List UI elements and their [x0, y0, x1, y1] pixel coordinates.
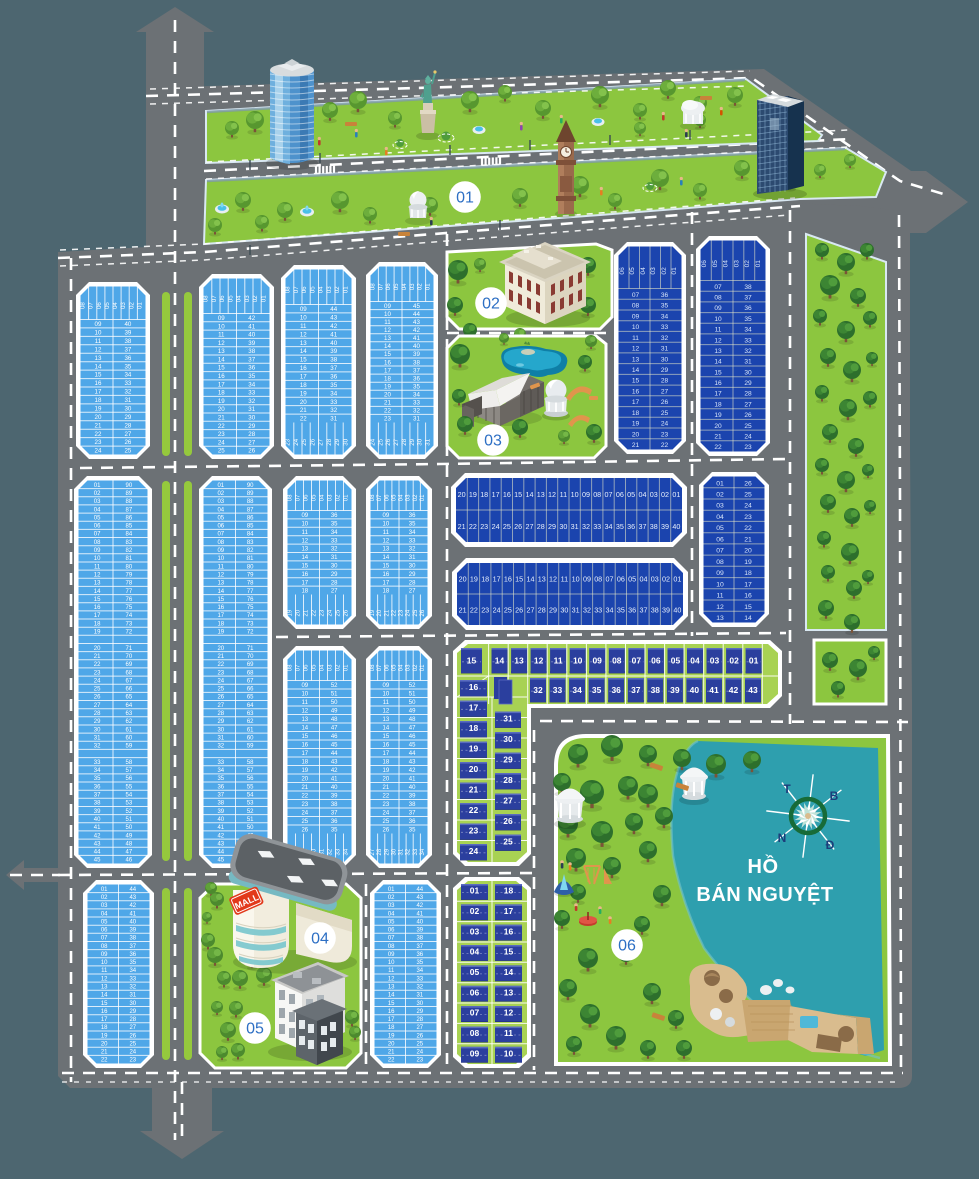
- svg-text:44: 44: [330, 306, 337, 313]
- svg-text:60: 60: [126, 736, 133, 742]
- svg-text:40: 40: [413, 343, 420, 350]
- svg-text:13: 13: [537, 490, 545, 499]
- svg-text:11: 11: [716, 593, 723, 600]
- svg-text:18: 18: [481, 575, 489, 584]
- svg-text:09: 09: [470, 1048, 480, 1058]
- svg-text:24: 24: [416, 1050, 423, 1056]
- svg-text:74: 74: [247, 613, 254, 619]
- svg-text:02: 02: [729, 656, 739, 666]
- svg-text:42: 42: [409, 768, 416, 774]
- svg-text:27: 27: [744, 401, 752, 408]
- svg-text:03: 03: [217, 499, 224, 505]
- svg-text:02: 02: [334, 286, 341, 293]
- svg-text:13: 13: [716, 615, 724, 622]
- svg-text:30: 30: [129, 1001, 136, 1007]
- svg-text:18: 18: [300, 382, 307, 389]
- svg-text:02: 02: [94, 491, 101, 497]
- svg-text:18: 18: [101, 1025, 108, 1031]
- svg-text:04: 04: [401, 283, 408, 290]
- svg-text:24: 24: [217, 678, 224, 684]
- svg-text:36: 36: [124, 355, 131, 362]
- svg-text:10: 10: [504, 1048, 514, 1058]
- svg-text:29: 29: [248, 423, 255, 430]
- svg-text:19: 19: [388, 1033, 395, 1039]
- svg-text:66: 66: [247, 687, 254, 693]
- svg-text:25: 25: [217, 687, 224, 693]
- svg-text:33: 33: [661, 324, 669, 331]
- svg-text:07: 07: [88, 302, 95, 309]
- svg-text:16: 16: [218, 373, 225, 380]
- svg-text:04: 04: [723, 260, 730, 268]
- svg-text:21: 21: [217, 654, 224, 660]
- svg-text:23: 23: [383, 802, 390, 808]
- svg-text:26: 26: [515, 606, 523, 615]
- svg-text:22: 22: [95, 431, 102, 438]
- svg-text:48: 48: [409, 717, 416, 723]
- svg-text:17: 17: [469, 702, 479, 712]
- svg-text:19: 19: [470, 575, 478, 584]
- svg-text:42: 42: [416, 903, 423, 909]
- svg-text:88: 88: [247, 499, 254, 505]
- svg-text:05: 05: [671, 656, 681, 666]
- svg-text:24: 24: [328, 609, 334, 616]
- svg-text:05: 05: [388, 919, 395, 925]
- svg-text:03: 03: [120, 302, 127, 309]
- svg-text:25: 25: [336, 609, 342, 616]
- svg-text:31: 31: [409, 555, 416, 561]
- svg-text:36: 36: [409, 819, 416, 825]
- svg-text:08: 08: [94, 540, 101, 546]
- svg-text:32: 32: [217, 744, 224, 750]
- svg-text:11: 11: [384, 319, 391, 326]
- svg-text:14: 14: [388, 993, 395, 999]
- svg-text:36: 36: [331, 819, 338, 825]
- svg-text:37: 37: [640, 606, 648, 615]
- svg-text:04: 04: [399, 664, 405, 671]
- svg-text:26: 26: [124, 439, 131, 446]
- svg-text:02: 02: [413, 664, 419, 671]
- svg-text:14: 14: [383, 555, 390, 561]
- svg-text:11: 11: [388, 968, 395, 974]
- svg-text:29: 29: [548, 522, 556, 531]
- svg-text:32: 32: [582, 522, 590, 531]
- svg-text:03: 03: [733, 260, 740, 268]
- svg-text:23: 23: [285, 438, 292, 445]
- svg-text:13: 13: [217, 581, 224, 587]
- svg-text:07: 07: [211, 295, 218, 302]
- svg-text:10: 10: [716, 581, 724, 588]
- svg-text:15: 15: [101, 1001, 108, 1007]
- svg-text:21: 21: [300, 407, 307, 414]
- svg-text:71: 71: [247, 646, 254, 652]
- svg-text:47: 47: [331, 726, 338, 732]
- svg-text:56: 56: [247, 776, 254, 782]
- svg-text:12: 12: [217, 573, 224, 579]
- svg-text:25: 25: [301, 819, 308, 825]
- svg-text:28: 28: [416, 1017, 423, 1023]
- svg-text:11: 11: [383, 700, 390, 706]
- svg-text:06: 06: [616, 490, 624, 499]
- svg-text:62: 62: [126, 719, 133, 725]
- svg-text:67: 67: [126, 678, 133, 684]
- svg-text:37: 37: [416, 944, 423, 950]
- svg-text:41: 41: [331, 777, 338, 783]
- svg-text:35: 35: [129, 960, 136, 966]
- svg-text:24: 24: [492, 522, 500, 531]
- svg-text:48: 48: [126, 841, 133, 847]
- svg-text:04: 04: [690, 656, 700, 666]
- svg-text:41: 41: [330, 331, 337, 338]
- svg-text:59: 59: [126, 744, 133, 750]
- svg-text:45: 45: [409, 743, 416, 749]
- svg-text:23: 23: [94, 670, 101, 676]
- svg-text:03: 03: [716, 503, 724, 510]
- svg-text:46: 46: [409, 734, 416, 740]
- svg-text:12: 12: [504, 1008, 514, 1018]
- svg-text:27: 27: [661, 389, 669, 396]
- svg-text:32: 32: [129, 985, 136, 991]
- svg-text:43: 43: [331, 760, 338, 766]
- svg-text:19: 19: [370, 609, 376, 616]
- svg-text:09: 09: [583, 575, 591, 584]
- svg-text:43: 43: [409, 760, 416, 766]
- svg-text:12: 12: [384, 327, 391, 334]
- svg-text:63: 63: [126, 711, 133, 717]
- svg-text:10: 10: [101, 960, 108, 966]
- svg-text:14: 14: [300, 348, 307, 355]
- svg-text:02: 02: [388, 895, 395, 901]
- svg-text:08: 08: [714, 295, 722, 302]
- svg-text:07: 07: [388, 936, 395, 942]
- svg-text:20: 20: [217, 646, 224, 652]
- svg-text:17: 17: [218, 381, 225, 388]
- svg-text:34: 34: [409, 530, 416, 536]
- svg-text:22: 22: [714, 444, 722, 451]
- svg-text:43: 43: [94, 841, 101, 847]
- svg-text:37: 37: [331, 811, 338, 817]
- svg-text:01: 01: [749, 656, 759, 666]
- svg-text:47: 47: [126, 850, 133, 856]
- svg-text:14: 14: [527, 575, 535, 584]
- svg-text:T: T: [783, 782, 791, 796]
- svg-text:22: 22: [312, 609, 318, 616]
- svg-text:24: 24: [661, 421, 669, 428]
- svg-text:08: 08: [288, 494, 294, 501]
- svg-text:36: 36: [744, 305, 752, 312]
- svg-text:78: 78: [126, 581, 133, 587]
- svg-text:42: 42: [248, 315, 255, 322]
- svg-text:16: 16: [300, 365, 307, 372]
- svg-text:35: 35: [124, 363, 131, 370]
- svg-text:29: 29: [129, 1009, 136, 1015]
- svg-text:09: 09: [383, 683, 390, 689]
- svg-text:38: 38: [651, 685, 661, 695]
- svg-text:28: 28: [538, 606, 546, 615]
- svg-text:05: 05: [393, 283, 400, 290]
- svg-text:23: 23: [416, 1058, 423, 1064]
- svg-text:44: 44: [94, 850, 101, 856]
- svg-text:BÁN NGUYỆT: BÁN NGUYỆT: [696, 882, 833, 906]
- svg-text:20: 20: [632, 431, 640, 438]
- svg-text:23: 23: [481, 606, 489, 615]
- svg-text:21: 21: [384, 609, 390, 616]
- svg-text:04: 04: [640, 267, 647, 275]
- svg-text:35: 35: [330, 382, 337, 389]
- svg-text:28: 28: [377, 848, 383, 855]
- svg-text:12: 12: [714, 337, 722, 344]
- svg-text:35: 35: [217, 776, 224, 782]
- svg-text:27: 27: [217, 703, 224, 709]
- svg-text:21: 21: [301, 785, 308, 791]
- svg-text:28: 28: [401, 438, 408, 445]
- svg-text:28: 28: [661, 378, 669, 385]
- svg-text:31: 31: [399, 848, 405, 855]
- svg-text:65: 65: [247, 695, 254, 701]
- svg-text:08: 08: [203, 295, 210, 302]
- svg-text:36: 36: [129, 952, 136, 958]
- svg-text:20: 20: [300, 399, 307, 406]
- svg-text:69: 69: [247, 662, 254, 668]
- svg-text:18: 18: [217, 621, 224, 627]
- svg-text:26: 26: [129, 1033, 136, 1039]
- svg-text:10: 10: [388, 960, 395, 966]
- svg-text:07: 07: [293, 286, 300, 293]
- svg-text:37: 37: [330, 365, 337, 372]
- svg-text:15: 15: [384, 351, 391, 358]
- svg-text:24: 24: [218, 439, 225, 446]
- svg-text:09: 09: [94, 548, 101, 554]
- svg-text:09: 09: [632, 313, 640, 320]
- svg-text:31: 31: [744, 359, 752, 366]
- svg-text:34: 34: [413, 392, 420, 399]
- svg-text:33: 33: [330, 399, 337, 406]
- svg-text:80: 80: [126, 564, 133, 570]
- svg-text:04: 04: [639, 490, 647, 499]
- svg-text:29: 29: [384, 848, 390, 855]
- svg-text:49: 49: [409, 709, 416, 715]
- svg-text:39: 39: [94, 809, 101, 815]
- svg-text:08: 08: [594, 575, 602, 584]
- svg-text:31: 31: [413, 416, 420, 423]
- svg-text:23: 23: [218, 431, 225, 438]
- svg-text:24: 24: [744, 434, 752, 441]
- svg-text:03: 03: [406, 494, 412, 501]
- svg-text:B: B: [830, 789, 839, 803]
- svg-text:13: 13: [632, 356, 640, 363]
- svg-text:68: 68: [126, 670, 133, 676]
- svg-text:07: 07: [377, 283, 384, 290]
- svg-text:24: 24: [94, 678, 101, 684]
- svg-text:22: 22: [391, 609, 397, 616]
- svg-text:17: 17: [493, 575, 501, 584]
- svg-text:39: 39: [413, 351, 420, 358]
- svg-text:67: 67: [247, 678, 254, 684]
- svg-text:11: 11: [561, 575, 568, 584]
- svg-text:12: 12: [548, 490, 556, 499]
- svg-text:33: 33: [331, 538, 338, 544]
- svg-text:12: 12: [534, 656, 544, 666]
- svg-text:06: 06: [219, 295, 226, 302]
- svg-text:19: 19: [469, 743, 479, 753]
- svg-text:20: 20: [384, 392, 391, 399]
- svg-text:43: 43: [330, 315, 337, 322]
- svg-text:15: 15: [383, 564, 390, 570]
- svg-text:09: 09: [582, 490, 590, 499]
- svg-text:08: 08: [388, 944, 395, 950]
- svg-text:10: 10: [573, 656, 583, 666]
- svg-text:49: 49: [331, 709, 338, 715]
- svg-text:09: 09: [301, 683, 308, 689]
- svg-text:40: 40: [248, 332, 255, 339]
- svg-text:02: 02: [217, 491, 224, 497]
- svg-text:32: 32: [413, 408, 420, 415]
- svg-text:20: 20: [388, 1041, 395, 1047]
- svg-text:16: 16: [504, 575, 512, 584]
- svg-text:36: 36: [661, 292, 669, 299]
- svg-text:04: 04: [318, 286, 325, 293]
- svg-text:35: 35: [744, 316, 752, 323]
- svg-text:17: 17: [94, 613, 101, 619]
- svg-text:07: 07: [632, 292, 640, 299]
- svg-text:27: 27: [331, 589, 338, 595]
- svg-text:28: 28: [129, 1017, 136, 1023]
- svg-text:12: 12: [549, 575, 557, 584]
- svg-text:29: 29: [549, 606, 557, 615]
- svg-text:03: 03: [650, 267, 657, 275]
- svg-text:11: 11: [302, 700, 309, 706]
- svg-text:N: N: [778, 831, 787, 845]
- svg-text:21: 21: [469, 784, 479, 794]
- svg-text:22: 22: [101, 1058, 108, 1064]
- svg-text:32: 32: [330, 407, 337, 414]
- svg-text:13: 13: [218, 348, 225, 355]
- svg-text:25: 25: [503, 836, 513, 846]
- svg-text:80: 80: [247, 564, 254, 570]
- svg-text:17: 17: [632, 399, 640, 406]
- svg-text:70: 70: [247, 654, 254, 660]
- svg-text:28: 28: [326, 438, 333, 445]
- svg-text:05: 05: [391, 494, 397, 501]
- svg-text:20: 20: [94, 646, 101, 652]
- svg-text:39: 39: [670, 685, 680, 695]
- svg-text:HỒ: HỒ: [748, 854, 779, 878]
- svg-text:15: 15: [301, 564, 308, 570]
- svg-text:33: 33: [413, 400, 420, 407]
- svg-text:38: 38: [651, 606, 659, 615]
- svg-text:05: 05: [470, 967, 480, 977]
- svg-text:79: 79: [126, 573, 133, 579]
- svg-text:05: 05: [716, 525, 724, 532]
- svg-text:11: 11: [504, 1028, 513, 1038]
- svg-text:24: 24: [383, 811, 390, 817]
- svg-text:36: 36: [627, 522, 635, 531]
- svg-text:10: 10: [95, 330, 102, 337]
- svg-text:13: 13: [300, 340, 307, 347]
- svg-text:28: 28: [331, 580, 338, 586]
- svg-text:75: 75: [247, 605, 254, 611]
- svg-text:08: 08: [593, 490, 601, 499]
- svg-text:17: 17: [388, 1017, 395, 1023]
- svg-text:86: 86: [126, 516, 133, 522]
- svg-text:22: 22: [217, 662, 224, 668]
- svg-text:38: 38: [413, 359, 420, 366]
- svg-text:40: 40: [330, 340, 337, 347]
- svg-text:28: 28: [217, 711, 224, 717]
- svg-text:17: 17: [95, 389, 102, 396]
- svg-text:22: 22: [383, 794, 390, 800]
- svg-text:29: 29: [661, 367, 669, 374]
- svg-text:43: 43: [129, 895, 136, 901]
- svg-text:01: 01: [425, 283, 432, 290]
- svg-text:25: 25: [504, 606, 512, 615]
- svg-text:39: 39: [330, 348, 337, 355]
- svg-text:14: 14: [301, 555, 308, 561]
- svg-text:20: 20: [95, 414, 102, 421]
- svg-text:74: 74: [126, 613, 133, 619]
- svg-text:25: 25: [124, 448, 131, 455]
- svg-text:06: 06: [94, 524, 101, 530]
- svg-text:76: 76: [126, 597, 133, 603]
- svg-text:38: 38: [650, 522, 658, 531]
- svg-text:36: 36: [94, 784, 101, 790]
- svg-text:34: 34: [661, 313, 669, 320]
- svg-text:22: 22: [301, 794, 308, 800]
- svg-text:20: 20: [458, 490, 466, 499]
- svg-text:72: 72: [247, 630, 254, 636]
- svg-text:44: 44: [413, 311, 420, 318]
- svg-text:86: 86: [247, 516, 254, 522]
- svg-text:45: 45: [331, 743, 338, 749]
- svg-text:04: 04: [388, 911, 395, 917]
- svg-text:01: 01: [755, 260, 762, 268]
- svg-text:06: 06: [384, 494, 390, 501]
- svg-text:37: 37: [129, 944, 136, 950]
- svg-text:26: 26: [217, 695, 224, 701]
- svg-text:32: 32: [248, 398, 255, 405]
- svg-text:83: 83: [126, 540, 133, 546]
- svg-text:01: 01: [420, 494, 426, 501]
- svg-text:16: 16: [301, 572, 308, 578]
- svg-text:13: 13: [384, 335, 391, 342]
- svg-text:44: 44: [416, 887, 423, 893]
- svg-text:01: 01: [672, 490, 680, 499]
- svg-text:12: 12: [383, 709, 390, 715]
- svg-text:40: 40: [94, 817, 101, 823]
- svg-text:30: 30: [503, 734, 513, 744]
- svg-text:07: 07: [377, 664, 383, 671]
- svg-text:71: 71: [126, 646, 133, 652]
- svg-text:42: 42: [129, 903, 136, 909]
- svg-text:30: 30: [342, 438, 349, 445]
- svg-text:25: 25: [218, 448, 225, 455]
- svg-text:37: 37: [217, 793, 224, 799]
- svg-text:11: 11: [95, 338, 102, 345]
- svg-text:03: 03: [328, 664, 334, 671]
- svg-text:13: 13: [95, 355, 102, 362]
- svg-text:10: 10: [300, 315, 307, 322]
- svg-text:57: 57: [126, 768, 133, 774]
- svg-text:02: 02: [336, 494, 342, 501]
- svg-text:27: 27: [94, 703, 101, 709]
- svg-text:04: 04: [716, 514, 724, 521]
- svg-text:12: 12: [301, 538, 308, 544]
- svg-text:28: 28: [537, 522, 545, 531]
- svg-text:25: 25: [383, 819, 390, 825]
- svg-text:32: 32: [416, 985, 423, 991]
- svg-text:50: 50: [126, 825, 133, 831]
- svg-text:72: 72: [126, 630, 133, 636]
- svg-text:40: 40: [129, 919, 136, 925]
